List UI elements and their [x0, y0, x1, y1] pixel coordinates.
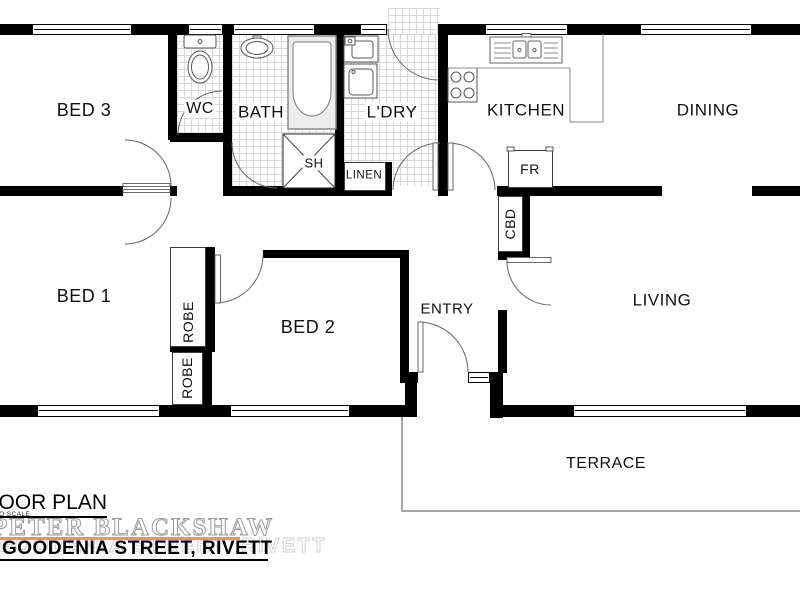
toilet-icon — [184, 35, 216, 83]
fridge-tick-marks — [507, 147, 553, 151]
feature-label-shower: SH — [302, 156, 325, 171]
room-label-living: LIVING — [633, 292, 692, 309]
double-sink-icon — [490, 34, 562, 64]
room-label-kitchen: KITCHEN — [487, 102, 565, 119]
basin-icon — [241, 36, 273, 58]
feature-label-cupboard: CBD — [503, 208, 517, 239]
feature-label-robe1: ROBE — [181, 301, 195, 343]
feature-label-linen: LINEN — [346, 170, 382, 182]
property-address: GOODENIA STREET, RIVETT — [2, 538, 273, 560]
address-underline — [0, 559, 268, 561]
washing-machine-icon — [344, 64, 377, 98]
room-label-bed1: BED 1 — [57, 287, 112, 305]
room-label-bath: BATH — [236, 103, 286, 122]
room-label-terrace: TERRACE — [566, 456, 646, 472]
cooktop-icon — [448, 68, 477, 102]
room-label-bed2: BED 2 — [281, 318, 336, 336]
room-label-wc: WC — [184, 100, 216, 118]
room-label-bed3: BED 3 — [57, 101, 112, 119]
room-label-dining: DINING — [677, 102, 740, 119]
room-label-laundry: L'DRY — [365, 103, 420, 122]
bathtub-icon — [288, 36, 336, 129]
laundry-tub-icon — [344, 36, 378, 62]
floor-plan-canvas: BED 3 WC BATH L'DRY KITCHEN DINING BED 1… — [0, 0, 800, 600]
feature-label-fridge: FR — [520, 162, 540, 176]
feature-label-robe2: ROBE — [180, 357, 194, 399]
room-label-entry: ENTRY — [420, 302, 473, 317]
